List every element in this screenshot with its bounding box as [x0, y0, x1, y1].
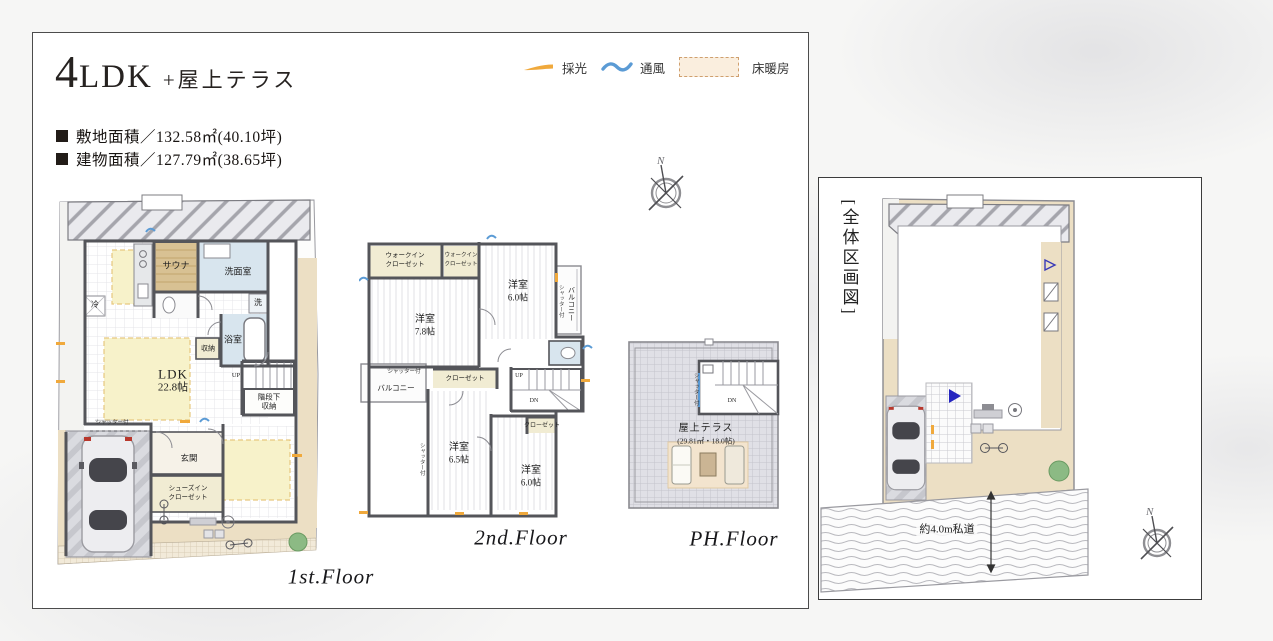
tree-icon [289, 533, 307, 551]
terrace-table [700, 453, 716, 476]
car-icon-site [887, 406, 924, 490]
washer-label: 洗 [254, 299, 262, 307]
legend-daylight-label: 採光 [562, 58, 587, 77]
compass-icon: N [636, 151, 696, 221]
terrace-size-label: (29.81㎡・18.0帖) [677, 437, 735, 445]
room-a-label: 洋室 [415, 315, 435, 325]
floor1-drawing [52, 192, 336, 578]
floor2-plan: ウォークイン クローゼット ウォークイン クローゼット 洋室 7.8帖 洋室 6… [359, 229, 599, 519]
square-bullet-icon [56, 153, 68, 165]
wic1-label-1: ウォークイン [386, 253, 425, 260]
daylight-arrow-icon [523, 60, 555, 74]
site-plan-title: [全体区画図] [841, 199, 858, 316]
stair-storage-label-1: 階段下 [258, 393, 281, 401]
tree-icon-site [1049, 461, 1069, 481]
main-floorplan-panel: 4LDK+屋上テラス 敷地面積／132.58㎡(40.10坪) 建物面積／127… [32, 32, 809, 609]
legend-floor-heating-label: 床暖房 [752, 58, 790, 77]
road [821, 489, 1088, 592]
closet-left-label: クローゼット [446, 376, 485, 383]
wic1-label-2: クローゼット [386, 262, 425, 269]
title-number: 4 [55, 46, 79, 97]
shutter-label-ph: シャッター付 [692, 373, 698, 406]
up-label-2f: UP [515, 373, 523, 379]
legend-daylight: 採光 [523, 58, 587, 77]
room-c-label: 洋室 [449, 443, 469, 453]
kitchen-sink-icon [138, 284, 148, 298]
room-b-floor [479, 244, 556, 339]
roof-notch-site [947, 195, 983, 208]
bathroom-label: 浴室 [224, 336, 242, 345]
road-width-label: 約4.0m私道 [916, 524, 977, 537]
shutter-label-2f-roomc: シャッター付 [418, 443, 424, 476]
room-c-size: 6.5帖 [449, 456, 469, 465]
parapet-detail [705, 339, 713, 345]
building-area-text: 建物面積／127.79㎡(38.65坪) [76, 148, 282, 170]
legend-ventilation: 通風 [601, 58, 665, 77]
room-b-label: 洋室 [508, 281, 528, 291]
floor-heating-box-icon [679, 57, 739, 77]
site-plan-panel: N [全体区画図] 約4.0m私道 [818, 177, 1202, 600]
compass-north-label: N [656, 155, 665, 167]
vanity [204, 244, 230, 258]
page: 4LDK+屋上テラス 敷地面積／132.58㎡(40.10坪) 建物面積／127… [0, 0, 1273, 641]
floor-ph-plan: シャッター付 DN 屋上テラス (29.81㎡・18.0帖) [619, 329, 809, 549]
up-label: UP [232, 373, 240, 380]
shoe-closet-label-2: クローゼット [169, 495, 208, 502]
legend-ventilation-label: 通風 [640, 58, 665, 77]
room-a-size: 7.8帖 [415, 328, 435, 337]
compass-icon-site: N [1141, 506, 1173, 559]
sauna-label: サウナ [162, 262, 189, 271]
building-area-row: 建物面積／127.79㎡(38.65坪) [56, 148, 282, 170]
shutter-label-2f-right: シャッター付 [557, 285, 563, 318]
floor2-name: 2nd.Floor [474, 528, 568, 549]
site-area-text: 敷地面積／132.58㎡(40.10坪) [76, 125, 282, 147]
toilet-icon [561, 347, 575, 358]
title-sub: +屋上テラス [163, 68, 297, 92]
bathtub-icon [244, 318, 265, 362]
shutter-label-2f-left: シャッター付 [387, 369, 420, 376]
shoe-closet-label-1: シューズイン [169, 486, 208, 493]
compass-north-label-site: N [1145, 506, 1154, 518]
wic2-label-1: ウォークイン [444, 253, 477, 259]
room-d-size: 6.0帖 [521, 479, 541, 488]
dn-label-ph: DN [728, 398, 737, 404]
terrace-label: 屋上テラス [679, 424, 734, 434]
fridge-label: 冷 [91, 301, 99, 309]
ldk-label: LDK [158, 368, 188, 381]
storage-label: 収納 [201, 346, 215, 353]
washroom-label: 洗面室 [224, 268, 251, 277]
shutter-label-1f: シャッター付 [95, 420, 128, 427]
car-icon [79, 436, 137, 552]
toilet-room [154, 292, 198, 318]
dn-label-2f: DN [530, 398, 539, 404]
legend: 採光 通風 床暖房 [523, 57, 790, 77]
balcony-right-label: バルコニー [568, 287, 575, 322]
title-ldk: LDK [79, 59, 153, 95]
site-plan-drawing: N [819, 178, 1199, 597]
floor-ph-name: PH.Floor [689, 529, 778, 550]
terrace-sofa-right [725, 446, 744, 484]
floor1-name: 1st.Floor [288, 567, 375, 588]
room-b-size: 6.0帖 [508, 294, 528, 303]
room-d-label: 洋室 [521, 466, 541, 476]
site-area-row: 敷地面積／132.58㎡(40.10坪) [56, 125, 282, 147]
entrance-label: 玄関 [180, 454, 197, 463]
square-bullet-icon [56, 130, 68, 142]
stair-storage-label-2: 収納 [262, 402, 277, 410]
toilet-icon [163, 297, 175, 313]
stair-landing [703, 365, 713, 373]
wic2-label-2: クローゼット [444, 262, 477, 268]
page-title: 4LDK+屋上テラス [55, 45, 297, 98]
floor1-plan: 冷 サウナ 洗面室 洗 浴室 収納 LDK 22.8帖 UP 階段下 収納 玄関… [52, 192, 336, 578]
ldk-size-label: 22.8帖 [158, 383, 188, 394]
closet-right-label: クローゼット [524, 423, 560, 429]
legend-floor-heating: 床暖房 [679, 57, 790, 77]
footprint-side-court [1041, 242, 1061, 428]
roof-overhang [68, 200, 310, 240]
ground-right [298, 258, 317, 528]
balcony-left-label: バルコニー [377, 384, 414, 392]
wind-wave-icon [601, 59, 633, 75]
roof-notch [142, 195, 182, 210]
